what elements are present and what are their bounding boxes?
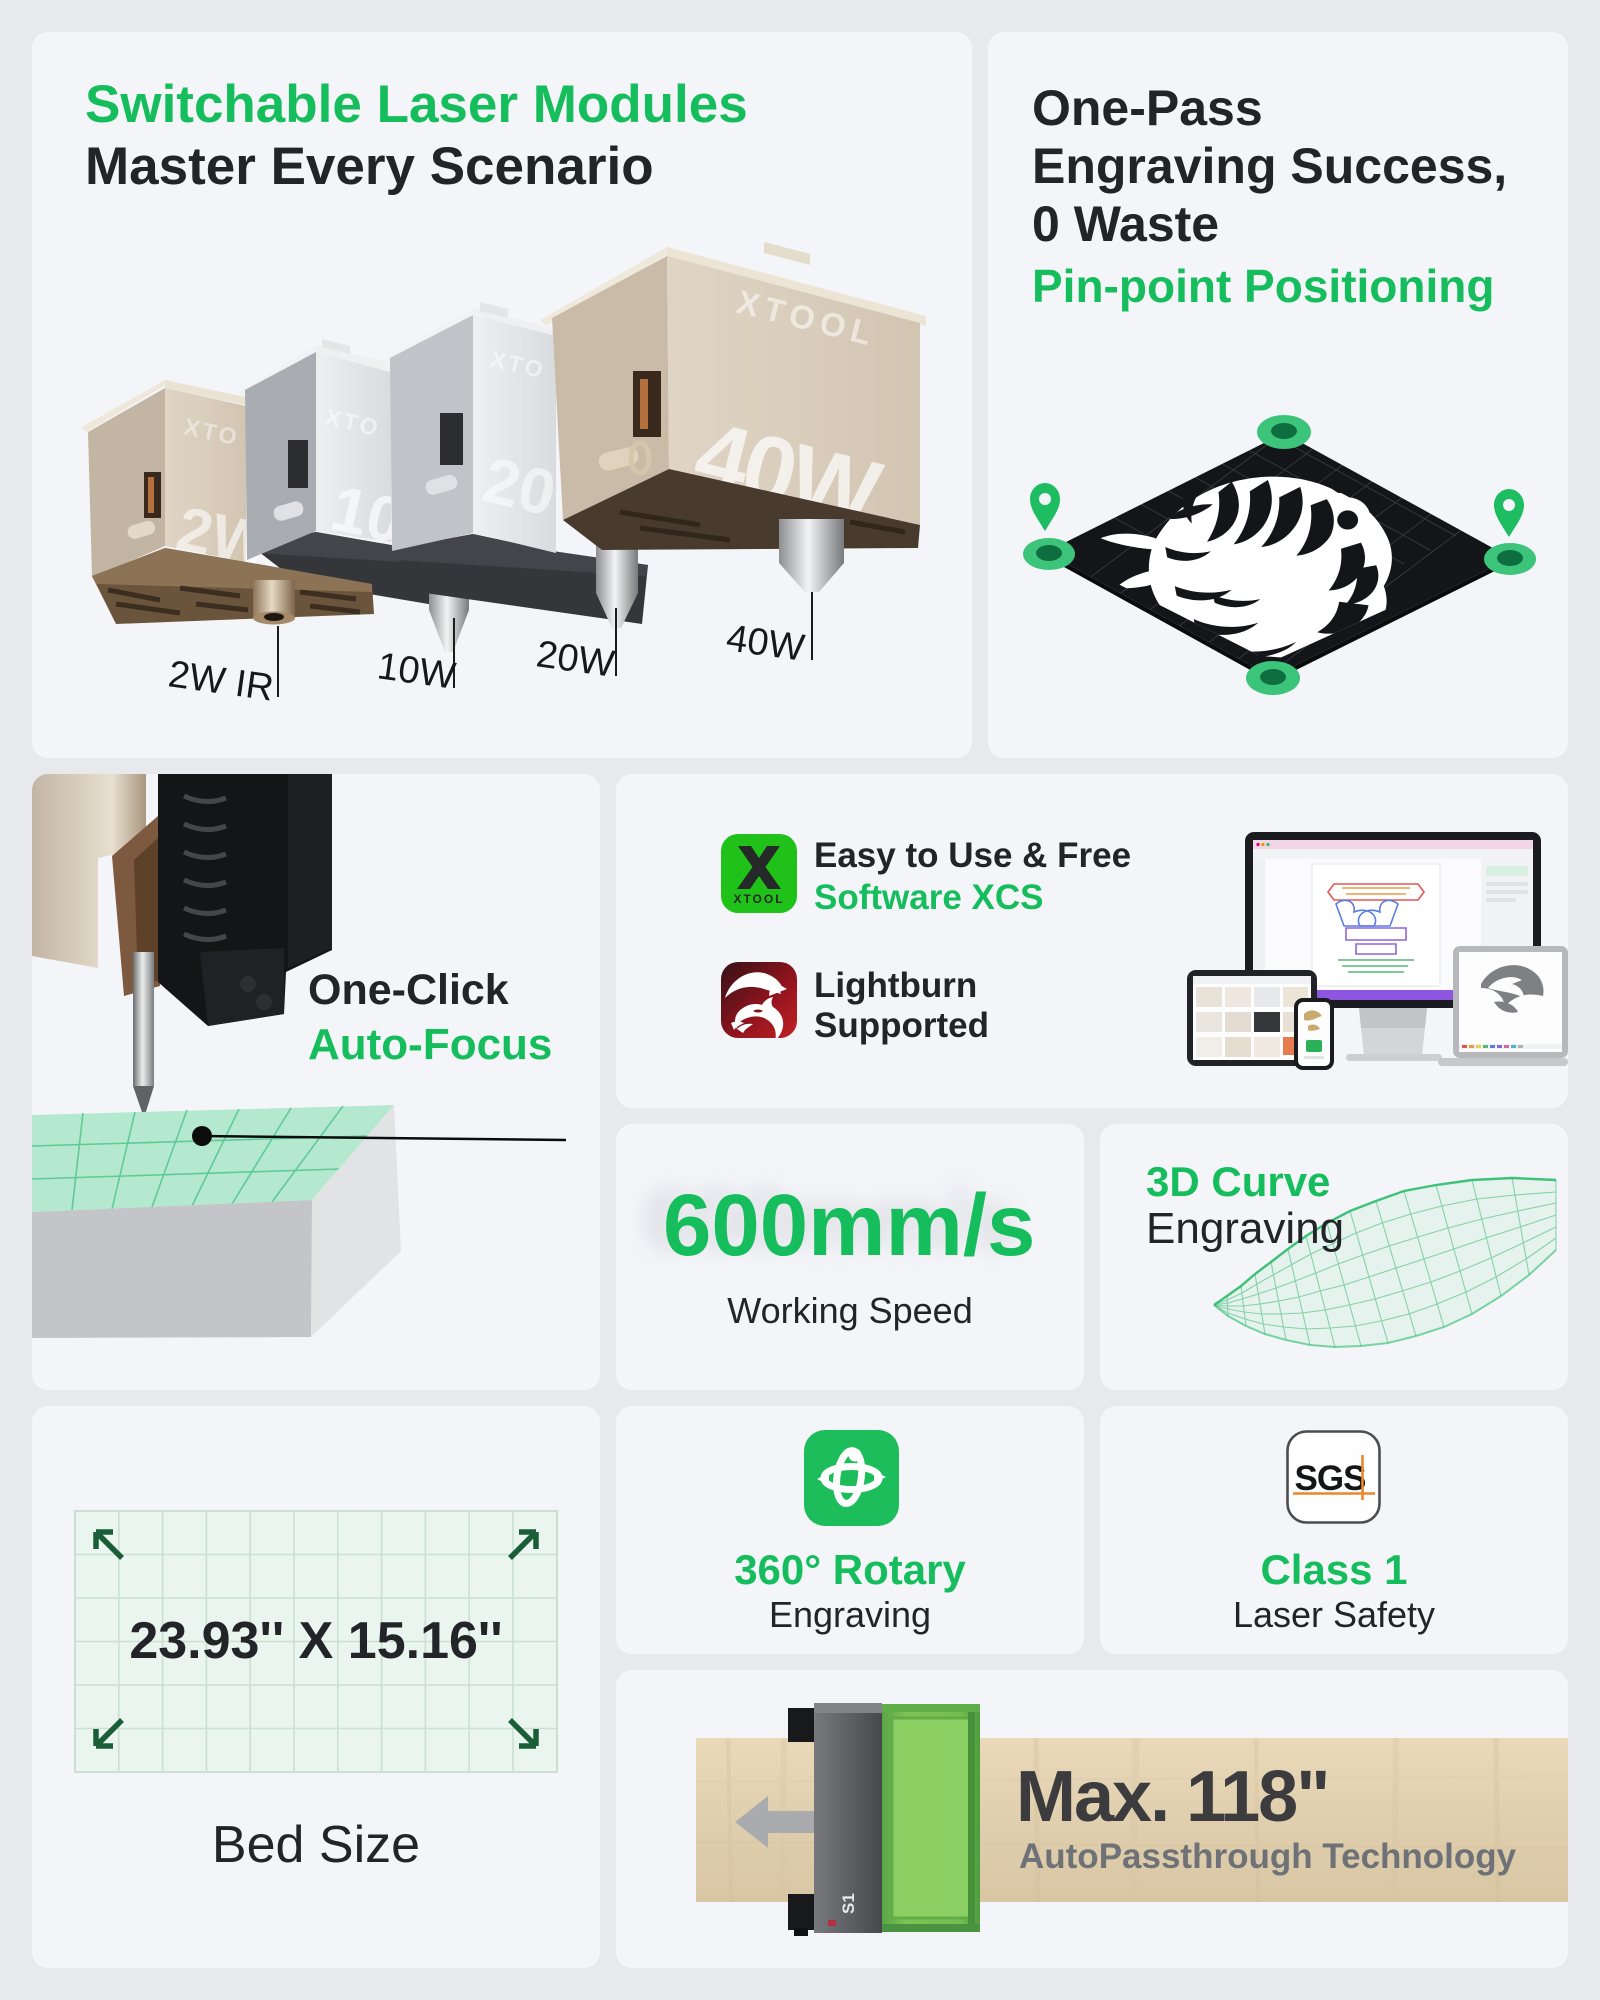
svg-text:40W: 40W (724, 617, 807, 669)
svg-text:S1: S1 (839, 1893, 858, 1914)
svg-text:XTOOL: XTOOL (733, 892, 784, 906)
svg-text:2W IR: 2W IR (166, 653, 276, 709)
svg-text:SGS: SGS (1295, 1459, 1366, 1498)
svg-text:20W: 20W (534, 633, 617, 685)
svg-text:10W: 10W (375, 645, 458, 697)
